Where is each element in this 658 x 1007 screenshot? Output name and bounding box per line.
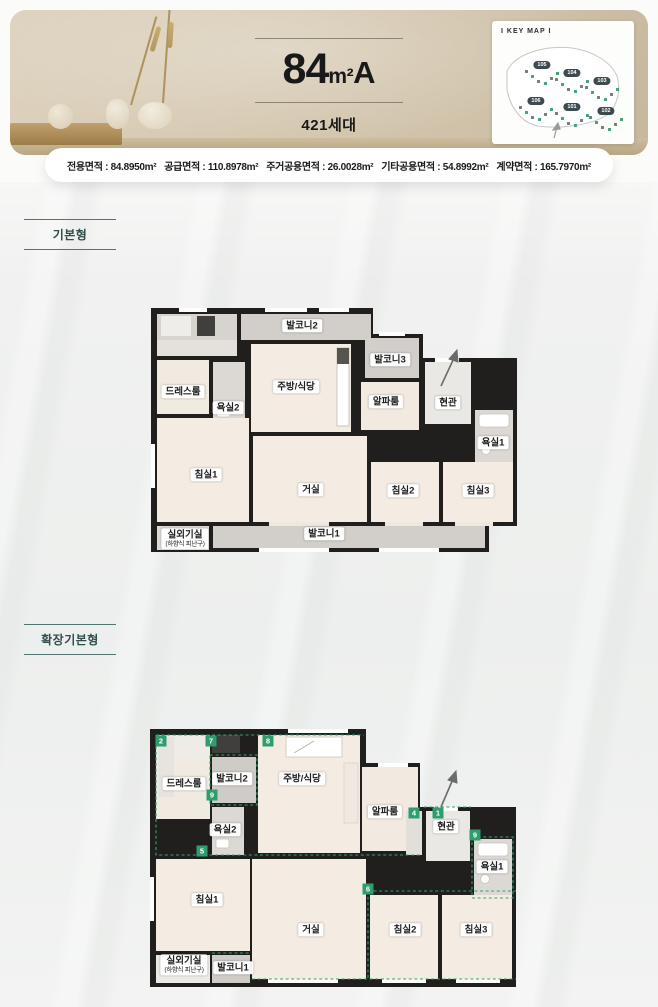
area-info-item: 전용면적 : 84.8950m² xyxy=(67,158,156,173)
unit-size-number: 84 xyxy=(283,45,329,93)
room-label-bath1: 욕실1 xyxy=(477,860,508,873)
keymap-buildings: 105104103106101102 xyxy=(500,39,626,139)
keymap-unit-dot xyxy=(574,90,577,93)
keymap-unit-dot xyxy=(531,75,534,78)
expansion-badge-2: 2 xyxy=(156,736,167,747)
floor-plan-extended: 278954196드레스룸발코니2주방/식당알파룸현관욕실2욕실1침실1거실침실… xyxy=(138,727,518,991)
keymap-unit-dot xyxy=(531,116,534,119)
keymap-unit-dot xyxy=(574,124,577,127)
keymap-unit-dot xyxy=(604,98,607,101)
title-rule-bottom xyxy=(255,102,403,103)
room-label-entrance: 현관 xyxy=(435,396,460,409)
expansion-badge-9: 9 xyxy=(207,790,218,801)
expansion-badge-6: 6 xyxy=(363,884,374,895)
header-banner: 84m²A 421세대 I KEY MAP I 1051041031061011… xyxy=(10,10,648,155)
keymap-unit-dot xyxy=(608,128,611,131)
room-label-bath1: 욕실1 xyxy=(478,436,509,449)
room-balcony1 xyxy=(213,526,485,548)
decor-round-vase xyxy=(48,104,73,129)
unit-type-title: 84m²A xyxy=(219,39,439,102)
area-info-item: 주거공용면적 : 26.0028m² xyxy=(266,158,373,173)
decor-vase xyxy=(138,102,172,129)
section-label-extended: 확장기본형 xyxy=(24,624,116,655)
room-label-bedroom3: 침실3 xyxy=(463,484,494,497)
room-label-bath2: 욕실2 xyxy=(210,823,241,836)
keymap-unit-dot xyxy=(519,106,522,109)
keymap-unit-dot xyxy=(610,93,613,96)
keymap-unit-dot xyxy=(589,116,592,119)
room-label-subtext: (하향식 피난구) xyxy=(164,967,203,975)
keymap-unit-dot xyxy=(567,88,570,91)
keymap-unit-dot xyxy=(561,83,564,86)
keymap-unit-dot xyxy=(597,96,600,99)
room-label-balcony2: 발코니2 xyxy=(212,772,252,785)
keymap-building-104: 104 xyxy=(563,69,580,77)
room-label-alpharoom: 알파룸 xyxy=(369,395,403,408)
decor-vase xyxy=(106,99,129,129)
keymap-title: I KEY MAP I xyxy=(501,28,551,35)
room-bedroom3 xyxy=(442,895,512,979)
room-label-livingroom: 거실 xyxy=(298,483,323,496)
section-label-basic: 기본형 xyxy=(24,219,116,250)
keymap-unit-dot xyxy=(556,72,559,75)
area-info-item: 계약면적 : 165.7970m² xyxy=(496,158,591,173)
household-count: 421세대 xyxy=(219,114,439,135)
section-basic-text: 기본형 xyxy=(53,228,88,242)
area-info-bar: 전용면적 : 84.8950m²공급면적 : 110.8978m²주거공용면적 … xyxy=(45,148,613,182)
area-info-item: 공급면적 : 110.8978m² xyxy=(164,158,258,173)
room-entrance xyxy=(426,811,470,861)
room-label-kitchen: 주방/식당 xyxy=(279,772,325,785)
floor-plan-basic: 발코니2드레스룸욕실2주방/식당발코니3알파룸현관욕실1침실1거실침실2침실3발… xyxy=(139,304,519,566)
expansion-badge-5: 5 xyxy=(197,846,208,857)
keymap-unit-dot xyxy=(537,80,540,83)
floor-plan-extended-svg xyxy=(138,727,518,991)
unit-size-unit: m² xyxy=(328,65,353,88)
room-label-bedroom2: 침실2 xyxy=(388,484,419,497)
room-label-dressroom: 드레스룸 xyxy=(163,777,206,790)
unit-type-letter: A xyxy=(353,55,375,90)
expansion-badge-9: 9 xyxy=(470,830,481,841)
room-bedroom2 xyxy=(370,895,438,979)
keymap-unit-dot xyxy=(544,113,547,116)
entry-arrow-icon xyxy=(441,771,457,807)
keymap-unit-dot xyxy=(555,112,558,115)
room-label-acroom: 실외기실(하향식 피난구) xyxy=(160,954,207,975)
decor-dried-stem xyxy=(130,16,157,105)
room-label-kitchen: 주방/식당 xyxy=(273,380,319,393)
room-label-bedroom1: 침실1 xyxy=(191,468,222,481)
room-livingroom xyxy=(252,859,366,979)
area-info-item: 기타공용면적 : 54.8992m² xyxy=(381,158,488,173)
keymap-unit-dot xyxy=(616,88,619,91)
keymap-building-103: 103 xyxy=(593,77,610,85)
room-label-balcony2: 발코니2 xyxy=(282,319,322,332)
keymap-unit-dot xyxy=(567,122,570,125)
room-label-balcony1: 발코니1 xyxy=(213,961,253,974)
keymap-building-101: 101 xyxy=(563,103,580,111)
keymap-building-105: 105 xyxy=(533,61,550,69)
room-label-balcony1: 발코니1 xyxy=(304,527,344,540)
expansion-badge-1: 1 xyxy=(433,808,444,819)
keymap-unit-dot xyxy=(595,121,598,124)
expansion-badge-4: 4 xyxy=(409,808,420,819)
room-label-acroom: 실외기실(하향식 피난구) xyxy=(161,528,208,549)
keymap-unit-dot xyxy=(580,119,583,122)
unit-title-block: 84m²A 421세대 xyxy=(219,38,439,135)
keymap-unit-dot xyxy=(555,78,558,81)
keymap-building-106: 106 xyxy=(527,97,544,105)
keymap-unit-dot xyxy=(585,86,588,89)
room-label-livingroom: 거실 xyxy=(298,923,323,936)
keymap-unit-dot xyxy=(591,91,594,94)
keymap-unit-dot xyxy=(525,70,528,73)
room-label-alpharoom: 알파룸 xyxy=(368,805,402,818)
section-extended-text: 확장기본형 xyxy=(41,633,99,647)
room-label-dressroom: 드레스룸 xyxy=(162,385,205,398)
room-label-subtext: (하향식 피난구) xyxy=(165,541,204,549)
keymap-unit-dot xyxy=(550,77,553,80)
keymap-building-102: 102 xyxy=(597,107,614,115)
keymap-unit-dot xyxy=(586,80,589,83)
keymap-unit-dot xyxy=(544,82,547,85)
expansion-badge-8: 8 xyxy=(263,736,274,747)
floor-plan-page: 84m²A 421세대 I KEY MAP I 1051041031061011… xyxy=(0,0,658,1007)
keymap-unit-dot xyxy=(550,108,553,111)
keymap-unit-dot xyxy=(614,123,617,126)
keymap-unit-dot xyxy=(620,118,623,121)
keymap-unit-dot xyxy=(525,111,528,114)
room-label-bedroom2: 침실2 xyxy=(390,923,421,936)
expansion-badge-7: 7 xyxy=(206,736,217,747)
room-livingroom xyxy=(253,436,367,522)
room-label-bath2: 욕실2 xyxy=(213,401,244,414)
room-label-bedroom1: 침실1 xyxy=(192,893,223,906)
room-label-balcony3: 발코니3 xyxy=(370,353,410,366)
keymap-unit-dot xyxy=(561,117,564,120)
keymap-unit-dot xyxy=(538,118,541,121)
keymap-unit-dot xyxy=(580,85,583,88)
keymap-card: I KEY MAP I 105104103106101102 xyxy=(492,21,634,144)
keymap-unit-dot xyxy=(601,126,604,129)
room-label-entrance: 현관 xyxy=(433,820,458,833)
decor-grass-spike xyxy=(167,22,174,48)
room-label-bedroom3: 침실3 xyxy=(461,923,492,936)
